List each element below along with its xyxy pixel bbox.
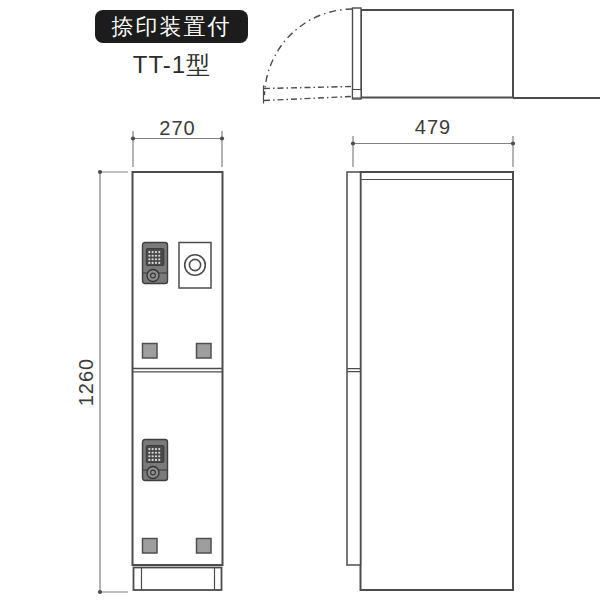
foot-bolt [197,344,212,359]
drawing-canvas [0,0,600,600]
technical-drawing: 捺印装置付 TT-1型 270 479 1260 [0,0,600,600]
door-hinge [353,90,362,99]
door-swing-arc [265,9,353,95]
open-door-phantom [264,87,352,101]
dial-knob [147,467,159,479]
top-view-closed-door [353,8,362,99]
side-view [347,172,513,590]
side-body-outline [361,172,514,590]
dimension-depth [351,136,515,167]
dial-lock-lower [143,440,168,481]
foot-bolt [143,539,158,554]
dial-knob [147,270,159,282]
dimension-front-width [131,131,224,167]
top-view-body [361,10,513,98]
foot-bolt [197,539,212,554]
foot-bolt [143,344,158,359]
dimension-height [98,170,128,594]
stamp-device [179,243,211,289]
front-base-plinth [134,568,222,591]
front-view [133,172,223,590]
dial-lock-upper [143,243,168,284]
top-view [264,8,600,104]
